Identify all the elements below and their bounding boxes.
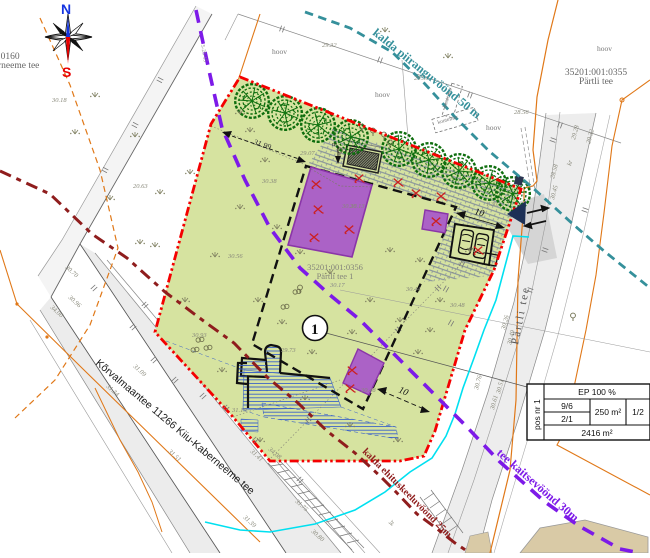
svg-text:m: m [332,141,337,148]
svg-text:hoov: hoov [375,90,390,99]
svg-text:2416 m²: 2416 m² [581,428,612,438]
svg-text:30.93: 30.93 [191,332,207,339]
svg-text:31.19: 31.19 [231,407,247,414]
svg-text:30.48: 30.48 [360,387,376,394]
svg-text:1/2: 1/2 [632,407,644,417]
svg-text:28.56: 28.56 [514,109,529,116]
svg-text:2/1: 2/1 [561,414,573,424]
svg-text:30.18: 30.18 [51,97,67,104]
svg-text:N: N [61,1,71,17]
svg-text:Pärtli tee 1: Pärtli tee 1 [317,271,354,281]
svg-text:250 m²: 250 m² [595,407,622,417]
svg-text:hoov: hoov [486,123,501,132]
svg-text:20.63: 20.63 [133,183,148,190]
svg-text:rneeme tee: rneeme tee [0,61,39,71]
svg-text:29.07: 29.07 [300,150,315,157]
svg-text:EP 100 %: EP 100 % [578,387,616,397]
svg-text:9/6: 9/6 [561,401,573,411]
svg-text:30.44: 30.44 [405,286,421,293]
svg-text:30.17: 30.17 [329,282,345,289]
svg-text:1: 1 [311,322,319,338]
svg-text:30.48: 30.48 [449,302,465,309]
svg-text:hoov: hoov [597,44,612,53]
svg-text:Pärtli tee: Pärtli tee [579,77,613,87]
svg-text:pos nr 1: pos nr 1 [532,399,542,430]
svg-text:30.26: 30.26 [341,203,357,210]
svg-text:1.30: 1.30 [486,201,498,208]
svg-text:S: S [62,64,71,80]
svg-text:29.73: 29.73 [281,347,296,354]
svg-text:hoov: hoov [272,47,287,56]
svg-text:30.56: 30.56 [227,253,243,260]
svg-text:30.38: 30.38 [261,178,277,185]
svg-text:29.32: 29.32 [322,42,337,49]
